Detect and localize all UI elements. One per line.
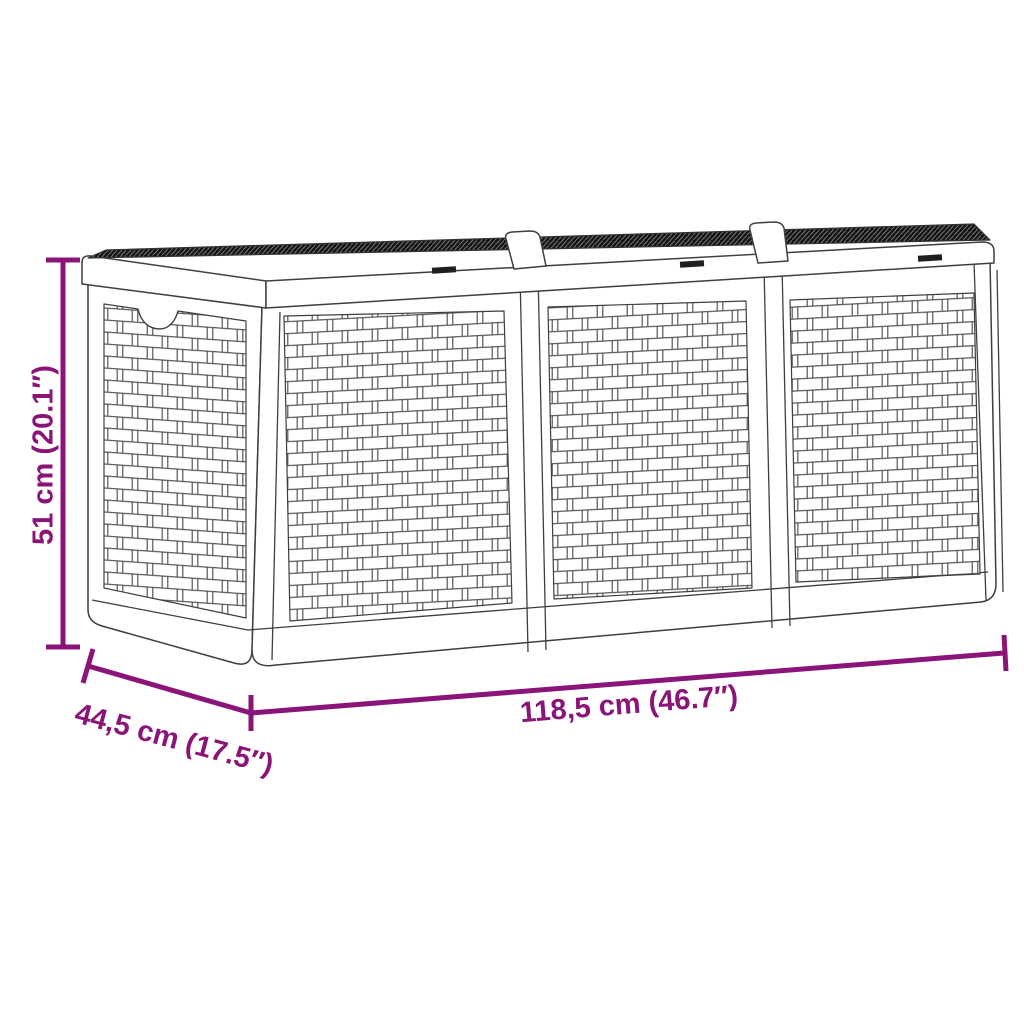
front-weave-panel-1 <box>284 311 512 621</box>
storage-box-diagram-svg <box>0 0 1024 1024</box>
storage-box-illustration <box>82 222 1003 666</box>
front-weave-panel-3 <box>790 293 980 582</box>
side-weave-panel <box>104 304 246 618</box>
lid-section-divider-1 <box>506 231 546 269</box>
height-dimension-label: 51 cm (20.1″) <box>30 365 59 545</box>
product-dimension-diagram: 51 cm (20.1″) 44,5 cm (17.5″) 118,5 cm (… <box>0 0 1024 1024</box>
front-weave-panel-2 <box>548 301 752 599</box>
